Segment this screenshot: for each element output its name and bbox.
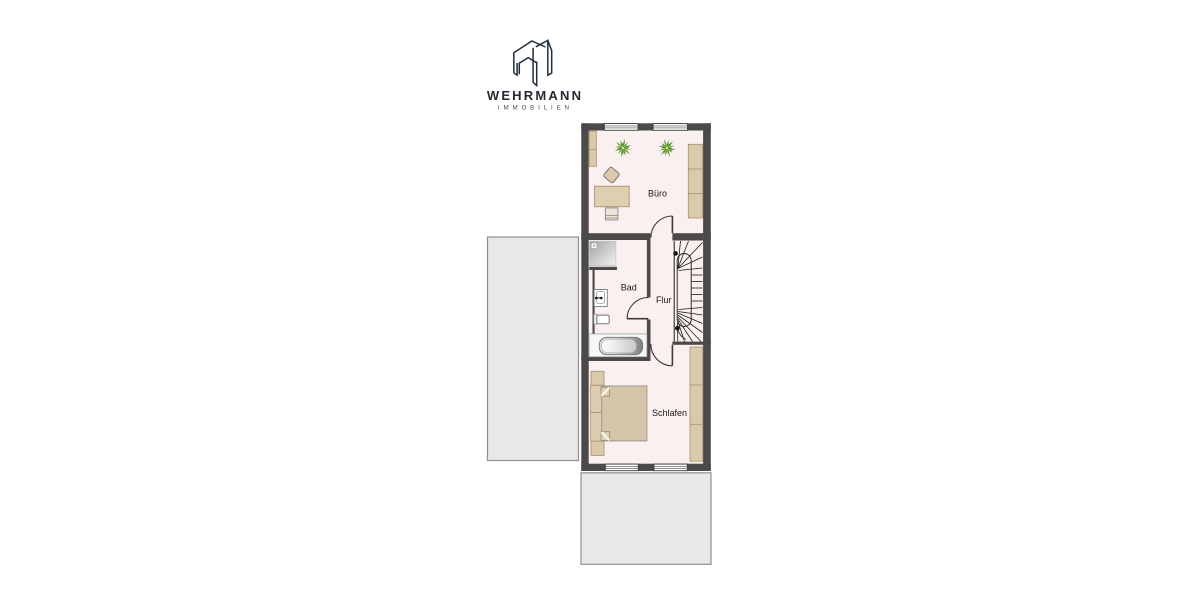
svg-text:Büro: Büro — [648, 189, 667, 199]
svg-text:WEHRMANN: WEHRMANN — [487, 88, 583, 103]
svg-text:Flur: Flur — [656, 295, 672, 305]
svg-text:Bad: Bad — [621, 283, 637, 293]
svg-text:IMMOBILIEN: IMMOBILIEN — [498, 105, 573, 112]
svg-text:Schlafen: Schlafen — [652, 408, 687, 418]
